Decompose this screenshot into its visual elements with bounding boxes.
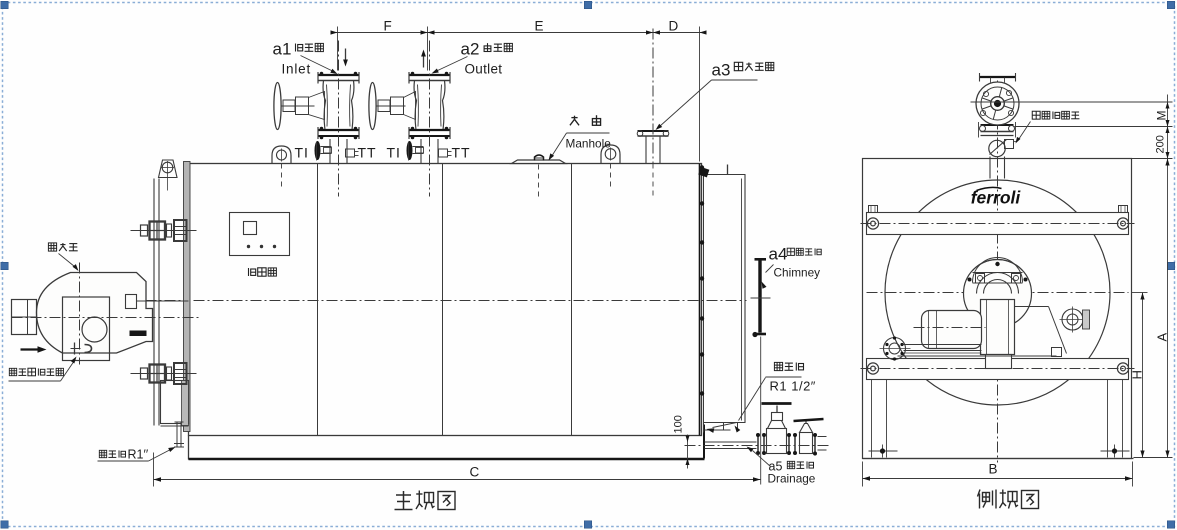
svg-text:C: C bbox=[470, 465, 480, 480]
svg-text:a2: a2 bbox=[461, 40, 480, 59]
svg-text:TI: TI bbox=[387, 145, 401, 161]
svg-text:200: 200 bbox=[1155, 135, 1167, 153]
svg-text:R1 1/2″: R1 1/2″ bbox=[770, 379, 816, 394]
svg-text:a4: a4 bbox=[769, 245, 788, 264]
svg-text:Outlet: Outlet bbox=[465, 62, 503, 77]
svg-text:E: E bbox=[535, 19, 544, 34]
svg-text:R1′′: R1′′ bbox=[128, 448, 149, 462]
svg-text:Drainage: Drainage bbox=[768, 472, 816, 486]
svg-text:D: D bbox=[669, 19, 679, 34]
svg-text:F: F bbox=[384, 19, 392, 34]
svg-text:TT: TT bbox=[358, 145, 377, 161]
svg-text:H: H bbox=[1130, 370, 1145, 379]
svg-text:TT: TT bbox=[452, 145, 471, 161]
svg-text:Manhole: Manhole bbox=[566, 137, 612, 151]
svg-text:A: A bbox=[1155, 333, 1170, 342]
svg-text:B: B bbox=[989, 462, 998, 477]
svg-text:a1: a1 bbox=[273, 40, 292, 59]
svg-text:a3: a3 bbox=[712, 61, 731, 80]
svg-text:M: M bbox=[1155, 111, 1169, 121]
svg-text:100: 100 bbox=[673, 415, 685, 433]
svg-text:Chimney: Chimney bbox=[774, 266, 821, 280]
svg-text:Inlet: Inlet bbox=[282, 62, 312, 77]
svg-text:TI: TI bbox=[295, 145, 309, 161]
